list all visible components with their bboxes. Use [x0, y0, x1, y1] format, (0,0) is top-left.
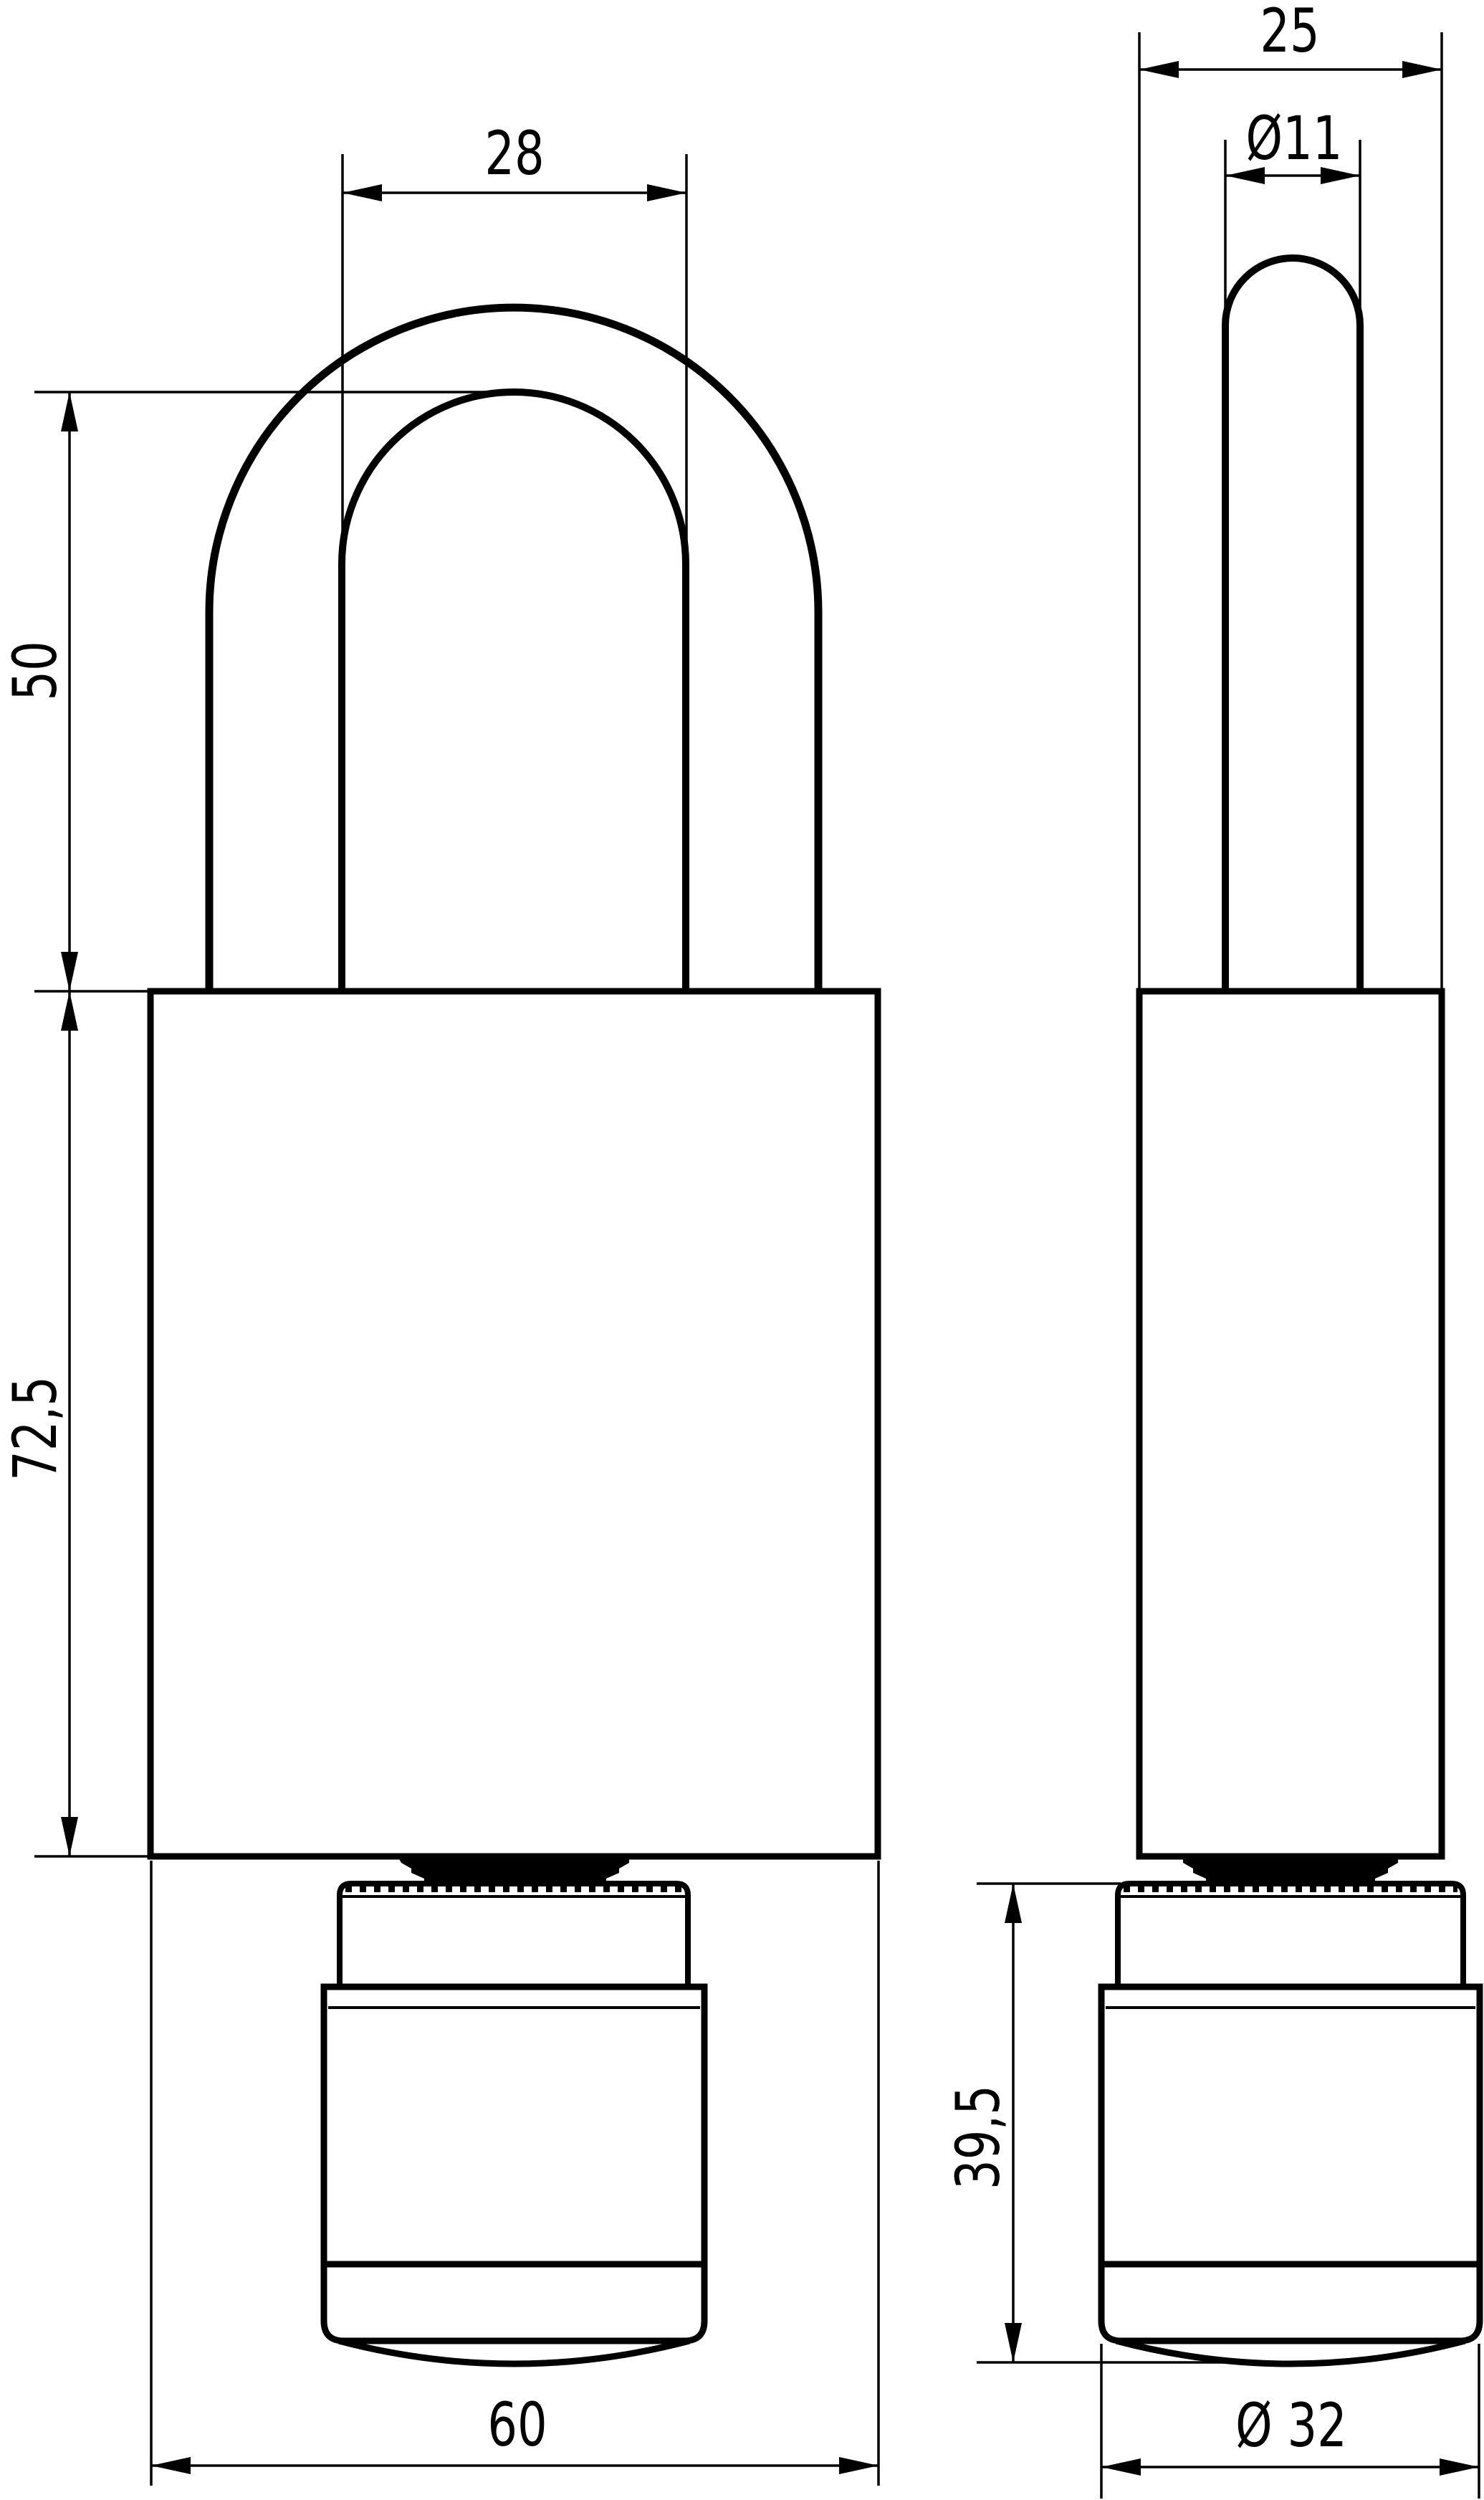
arrowhead-up	[61, 991, 78, 1031]
arrowhead-right	[1402, 61, 1442, 78]
padlock-technical-drawing: 28 50 72,5 60	[0, 0, 1484, 2500]
arrowhead-up	[61, 392, 78, 431]
side-knob-bottom-arc	[1116, 2341, 1465, 2364]
arrowhead-down	[61, 952, 78, 991]
arrowhead-left	[151, 2457, 191, 2474]
front-shackle-inner-outline	[342, 392, 686, 996]
dim-label-cylinder-height: 39,5	[943, 2085, 1013, 2190]
arrowhead-down	[1005, 2323, 1022, 2362]
side-view	[1101, 258, 1480, 2364]
side-knurled-collar	[1183, 1858, 1398, 1884]
side-cylinder-cap-outline	[1118, 1884, 1463, 1988]
dim-label-body-width: 60	[487, 2390, 547, 2460]
dim-label-body-depth: 25	[1260, 0, 1319, 66]
front-knob-outline	[324, 1987, 704, 2341]
arrowhead-right	[1440, 2458, 1479, 2476]
arrowhead-up	[1005, 1884, 1022, 1923]
dim-label-body-height: 72,5	[0, 1376, 70, 1481]
dim-label-shackle-height: 50	[0, 641, 70, 700]
front-knurled-collar	[398, 1858, 629, 1884]
arrowhead-right	[647, 184, 686, 201]
arrowhead-left	[1101, 2458, 1141, 2476]
drawing-page: 28 50 72,5 60	[0, 0, 1484, 2500]
front-knob-bottom-arc	[339, 2341, 689, 2364]
front-shackle-outer-outline	[209, 307, 818, 996]
front-body-outline	[150, 991, 878, 1856]
side-knob-outline	[1101, 1987, 1480, 2341]
arrowhead-left	[1139, 61, 1179, 78]
dim-label-shackle-diameter: Ø11	[1246, 103, 1343, 173]
dim-body-height: 72,5	[0, 991, 156, 1856]
front-view	[150, 307, 878, 2364]
dim-shackle-height: 50	[0, 392, 509, 991]
arrowhead-left	[343, 184, 382, 201]
arrowhead-right	[839, 2457, 879, 2474]
dim-label-cylinder-diameter: Ø 32	[1235, 2390, 1347, 2461]
side-body-outline	[1139, 991, 1442, 1856]
arrowhead-down	[61, 1817, 78, 1856]
front-cylinder-cap-outline	[340, 1884, 688, 1988]
dim-shackle-inner-width: 28	[343, 118, 686, 566]
side-shackle-rod-outline	[1225, 258, 1360, 996]
dim-label-shackle-inner-width: 28	[484, 118, 544, 189]
